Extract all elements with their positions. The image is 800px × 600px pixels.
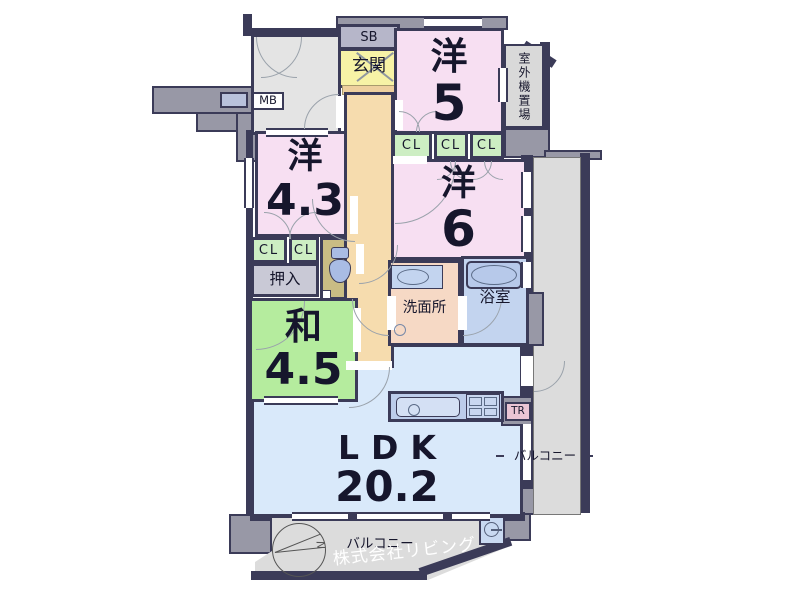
oshiire-label: 押入 (251, 264, 319, 296)
cl-label: CL (251, 238, 287, 262)
tr-label: TR (505, 403, 531, 420)
label-leader-line (496, 455, 504, 457)
faucet-icon (408, 404, 420, 416)
window (264, 396, 338, 405)
ldk-size-label: 20.2 (251, 464, 523, 510)
burner-icon (469, 397, 482, 406)
yo5-size-label: 5 (394, 76, 504, 130)
label-leader-line (585, 455, 593, 457)
plumbing-box (322, 290, 331, 299)
balcony-right-label: バルコニー (503, 448, 587, 464)
yo5-name-label: 洋 (394, 36, 504, 76)
compass-n-label: N (313, 537, 329, 553)
sb-label: SB (338, 25, 400, 49)
burner-icon (484, 408, 497, 417)
wa-size-label: 4.5 (249, 346, 358, 394)
wa-name-label: 和 (249, 306, 358, 346)
bathtub-icon (471, 265, 517, 285)
toilet-icon (331, 247, 349, 259)
burner-icon (469, 408, 482, 417)
window (244, 158, 254, 208)
cl-label: CL (392, 133, 432, 158)
window-mullion (348, 512, 357, 521)
bathroom-label: 浴室 (461, 288, 529, 308)
floor-plan: N SB 玄関 MB 洋 5 室外機置場 CL CL CL 洋 6 洋 4.3 … (0, 0, 800, 600)
yo43-size-label: 4.3 (255, 176, 355, 226)
window (266, 128, 328, 137)
yo43-name-label: 洋 (255, 139, 355, 175)
window (424, 17, 482, 28)
cl-label: CL (470, 133, 504, 158)
burner-icon (484, 397, 497, 406)
yo6-name-label: 洋 (390, 166, 527, 202)
cl-label: CL (289, 238, 319, 262)
window (292, 512, 490, 521)
door-opening (521, 356, 533, 386)
mb-label: MB (252, 93, 284, 109)
washroom-label: 洗面所 (388, 298, 461, 318)
genkan-label: 玄関 (338, 54, 400, 78)
kitchen-sink-icon (396, 397, 460, 417)
outdoor-unit-label: 室外機置場 (508, 48, 540, 126)
stove-icon (466, 394, 500, 419)
drain-icon (491, 529, 502, 531)
sink-icon (397, 269, 429, 285)
cl-label: CL (434, 133, 468, 158)
yo6-size-label: 6 (390, 202, 527, 256)
washer-icon (394, 324, 406, 336)
window-mullion (443, 512, 452, 521)
wall-segment (251, 571, 427, 580)
window (521, 262, 533, 288)
pipe-box (220, 92, 248, 108)
ldk-name-label: LDK (251, 428, 523, 466)
